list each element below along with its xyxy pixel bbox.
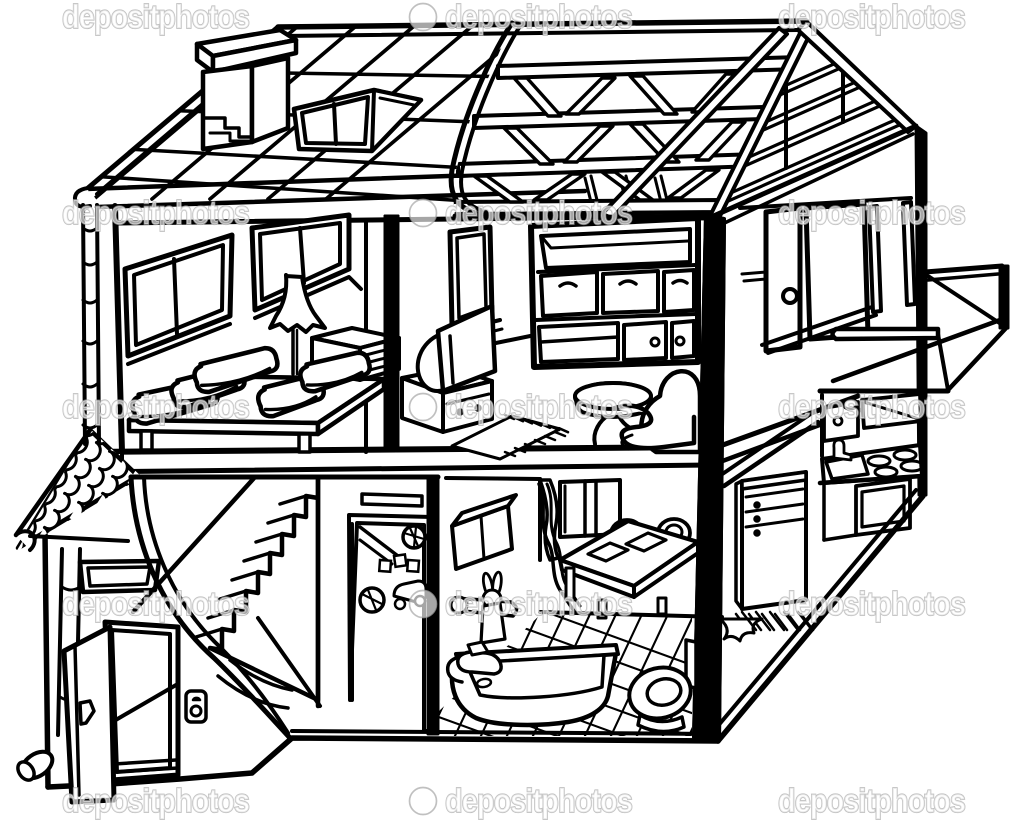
svg-text:depositphotos: depositphotos [62, 782, 249, 819]
svg-text:depositphotos: depositphotos [445, 782, 632, 819]
svg-text:depositphotos: depositphotos [778, 194, 965, 231]
svg-text:depositphotos: depositphotos [62, 0, 249, 35]
svg-text:depositphotos: depositphotos [62, 388, 249, 425]
svg-text:depositphotos: depositphotos [778, 585, 965, 622]
svg-text:depositphotos: depositphotos [62, 585, 249, 622]
svg-text:depositphotos: depositphotos [778, 0, 965, 35]
svg-text:depositphotos: depositphotos [445, 0, 632, 35]
svg-text:depositphotos: depositphotos [445, 194, 632, 231]
svg-text:depositphotos: depositphotos [445, 388, 632, 425]
svg-text:depositphotos: depositphotos [62, 194, 249, 231]
svg-text:depositphotos: depositphotos [778, 782, 965, 819]
svg-text:depositphotos: depositphotos [778, 388, 965, 425]
svg-text:depositphotos: depositphotos [445, 585, 632, 622]
